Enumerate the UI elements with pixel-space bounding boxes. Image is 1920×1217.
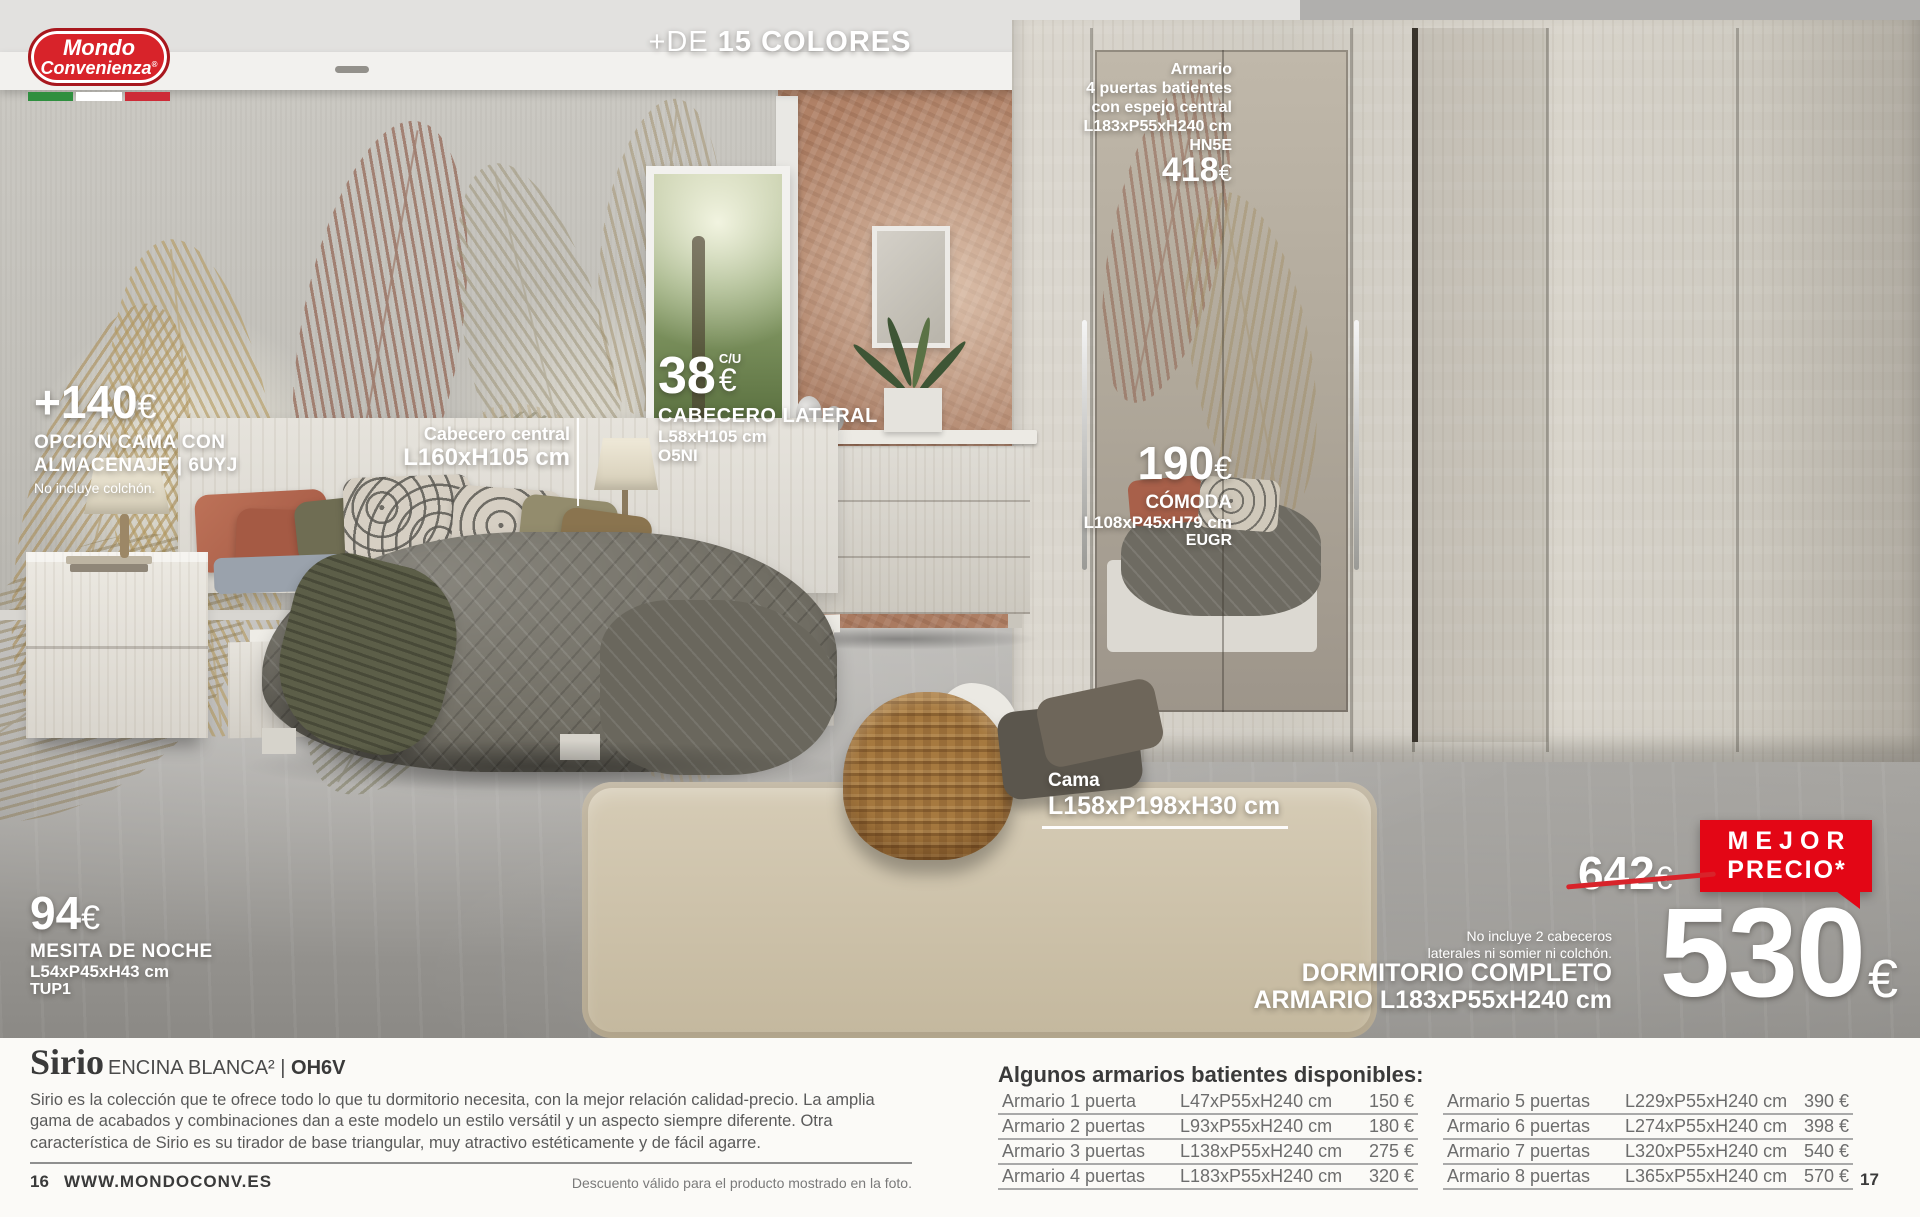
option-dims: L365xP55xH240 cm <box>1625 1166 1793 1187</box>
flag-red <box>125 92 170 101</box>
brand-logo-line2: Convenienza® <box>41 59 158 77</box>
underline <box>1042 826 1288 829</box>
flag-white <box>76 92 121 101</box>
option-dims: L183xP55xH240 cm <box>1180 1166 1348 1187</box>
nightstand-price: 94€ <box>30 890 213 941</box>
nightstand-code: TUP1 <box>30 981 213 999</box>
storage-option-line1: OPCIÓN CAMA CON <box>34 431 238 454</box>
deal-title-line2: ARMARIO L183xP55xH240 cm <box>1212 987 1612 1014</box>
table-row: Armario 5 puertas L229xP55xH240 cm 390 € <box>1443 1090 1853 1115</box>
storage-option-label: +140€ OPCIÓN CAMA CON ALMACENAJE | 6UYJ … <box>34 378 238 496</box>
central-headboard-dims: L160xH105 cm <box>320 444 570 472</box>
separator: | <box>280 1057 285 1079</box>
option-dims: L274xP55xH240 cm <box>1625 1116 1793 1137</box>
claim-light: +DE <box>648 26 708 58</box>
pointer-line <box>577 418 579 506</box>
book-stack <box>70 564 148 572</box>
table-row: Armario 7 puertas L320xP55xH240 cm 540 € <box>1443 1140 1853 1165</box>
bed-name: Cama <box>1048 770 1280 792</box>
option-name: Armario 6 puertas <box>1447 1116 1625 1137</box>
option-name: Armario 1 puerta <box>1002 1091 1180 1112</box>
wardrobe-shading <box>1740 20 1920 762</box>
final-price: 530 € <box>1610 890 1898 1016</box>
collection-name: Sirio <box>30 1044 104 1080</box>
collection-description: Sirio es la colección que te ofrece todo… <box>30 1090 910 1154</box>
collection-finish-row: ENCINA BLANCA² | OH6V <box>108 1057 346 1080</box>
wardrobe-offer-line2: 4 puertas batientes <box>1032 79 1232 98</box>
table-row: Armario 6 puertas L274xP55xH240 cm 398 € <box>1443 1115 1853 1140</box>
registered-mark: ® <box>152 60 158 69</box>
option-name: Armario 8 puertas <box>1447 1166 1625 1187</box>
storage-option-line2: ALMACENAJE | 6UYJ <box>34 454 238 477</box>
website-link[interactable]: WWW.MONDOCONV.ES <box>64 1172 272 1192</box>
option-name: Armario 3 puertas <box>1002 1141 1180 1162</box>
info-panel: Sirio ENCINA BLANCA² | OH6V Sirio es la … <box>0 1038 1920 1217</box>
brand-logo-line1: Mondo <box>63 37 135 59</box>
table-lamp <box>594 438 658 490</box>
option-price: 390 € <box>1793 1091 1849 1112</box>
deal-title-line1: DORMITORIO COMPLETO <box>1212 960 1612 987</box>
central-headboard-label: Cabecero central L160xH105 cm <box>320 424 570 472</box>
collection-finish: ENCINA BLANCA² <box>108 1057 275 1079</box>
lateral-headboard-name: CABECERO LATERAL <box>658 406 878 427</box>
option-name: Armario 5 puertas <box>1447 1091 1625 1112</box>
recessed-light <box>335 66 369 73</box>
colors-claim: +DE 15 COLORES <box>600 26 960 59</box>
catalog-page: Mondo Convenienza® +DE 15 COLORES Armari… <box>0 0 1920 1217</box>
disclaimer-text: Descuento válido para el producto mostra… <box>460 1175 912 1191</box>
option-name: Armario 2 puertas <box>1002 1116 1180 1137</box>
table-row: Armario 2 puertas L93xP55xH240 cm 180 € <box>998 1115 1418 1140</box>
nightstand-lamp-stem <box>120 514 129 558</box>
option-price: 570 € <box>1793 1166 1849 1187</box>
nightstand <box>26 552 208 738</box>
option-dims: L229xP55xH240 cm <box>1625 1091 1793 1112</box>
flag-green <box>28 92 73 101</box>
collection-code: OH6V <box>291 1057 345 1079</box>
page-number-left: 16 <box>30 1172 49 1192</box>
option-price: 275 € <box>1348 1141 1414 1162</box>
badge-line2: PRECIO* <box>1725 856 1847 885</box>
table-row: Armario 3 puertas L138xP55xH240 cm 275 € <box>998 1140 1418 1165</box>
option-dims: L93xP55xH240 cm <box>1180 1116 1348 1137</box>
wardrobe-offer-dims: L183xP55xH240 cm <box>1032 117 1232 136</box>
dresser-name: CÓMODA <box>1012 493 1232 513</box>
bedroom-photo: Mondo Convenienza® +DE 15 COLORES Armari… <box>0 0 1920 1038</box>
option-price: 540 € <box>1793 1141 1849 1162</box>
deal-title: DORMITORIO COMPLETO ARMARIO L183xP55xH24… <box>1212 960 1612 1014</box>
wardrobe-options-table-right: Armario 5 puertas L229xP55xH240 cm 390 €… <box>1443 1090 1853 1190</box>
option-name: Armario 7 puertas <box>1447 1141 1625 1162</box>
availability-title: Algunos armarios batientes disponibles: <box>998 1062 1423 1088</box>
dresser-code: EUGR <box>1012 532 1232 550</box>
lateral-headboard-price: 38 C/U € <box>658 350 878 402</box>
brand-logo: Mondo Convenienza® <box>28 28 170 86</box>
book-stack <box>66 556 152 564</box>
wardrobe-offer-price: 418€ <box>1032 161 1232 183</box>
deal-note: No incluye 2 cabeceros laterales ni somi… <box>1362 928 1612 962</box>
page-number-right: 17 <box>1860 1170 1879 1190</box>
dresser-leg <box>1008 614 1022 628</box>
option-price: 150 € <box>1348 1091 1414 1112</box>
table-row: Armario 1 puerta L47xP55xH240 cm 150 € <box>998 1090 1418 1115</box>
wardrobe-door-seam <box>1546 28 1549 752</box>
wardrobe-offer-line3: con espejo central <box>1032 98 1232 117</box>
option-price: 320 € <box>1348 1166 1414 1187</box>
option-dims: L320xP55xH240 cm <box>1625 1141 1793 1162</box>
final-price-number: 530 <box>1660 890 1864 1016</box>
dresser-label: 190€ CÓMODA L108xP45xH79 cm EUGR <box>1012 440 1232 550</box>
wardrobe-offer-label: Armario 4 puertas batientes con espejo c… <box>1032 60 1232 183</box>
final-price-euro: € <box>1868 952 1898 1006</box>
wicker-basket <box>843 692 1013 860</box>
storage-option-price: +140€ <box>34 378 238 431</box>
option-dims: L138xP55xH240 cm <box>1180 1141 1348 1162</box>
central-headboard-name: Cabecero central <box>320 424 570 444</box>
wardrobe-handle <box>1354 320 1359 570</box>
nightstand-dims: L54xP45xH43 cm <box>30 962 213 981</box>
lateral-headboard-code: O5NI <box>658 446 878 465</box>
nightstand-name: MESITA DE NOCHE <box>30 941 213 962</box>
option-dims: L47xP55xH240 cm <box>1180 1091 1348 1112</box>
option-name: Armario 4 puertas <box>1002 1166 1180 1187</box>
table-row: Armario 4 puertas L183xP55xH240 cm 320 € <box>998 1165 1418 1190</box>
wardrobe-open-door <box>1412 28 1548 742</box>
wall-mirror <box>872 226 950 348</box>
deal-note-line1: No incluye 2 cabeceros <box>1362 928 1612 945</box>
storage-option-note: No incluye colchón. <box>34 480 238 496</box>
claim-bold: 15 COLORES <box>718 26 912 58</box>
bed-dims: L158xP198xH30 cm <box>1048 792 1280 821</box>
planter <box>884 388 942 432</box>
option-price: 180 € <box>1348 1116 1414 1137</box>
divider-line <box>30 1162 912 1164</box>
wardrobe-door-seam <box>1350 28 1353 752</box>
lateral-headboard-label: 38 C/U € CABECERO LATERAL L58xH105 cm O5… <box>658 350 878 465</box>
wardrobe-door-seam <box>1736 28 1739 752</box>
option-price: 398 € <box>1793 1116 1849 1137</box>
dresser-dims: L108xP45xH79 cm <box>1012 513 1232 532</box>
table-row: Armario 8 puertas L365xP55xH240 cm 570 € <box>1443 1165 1853 1190</box>
wardrobe-offer-line1: Armario <box>1032 60 1232 79</box>
italian-flag-stripe <box>28 92 170 101</box>
dresser-price: 190€ <box>1012 440 1232 491</box>
lateral-headboard-dims: L58xH105 cm <box>658 427 878 446</box>
badge-line1: MEJOR <box>1721 827 1852 856</box>
nightstand-label: 94€ MESITA DE NOCHE L54xP45xH43 cm TUP1 <box>30 890 213 999</box>
bed-label: Cama L158xP198xH30 cm <box>1048 770 1280 821</box>
wardrobe-options-table-left: Armario 1 puerta L47xP55xH240 cm 150 € A… <box>998 1090 1418 1190</box>
